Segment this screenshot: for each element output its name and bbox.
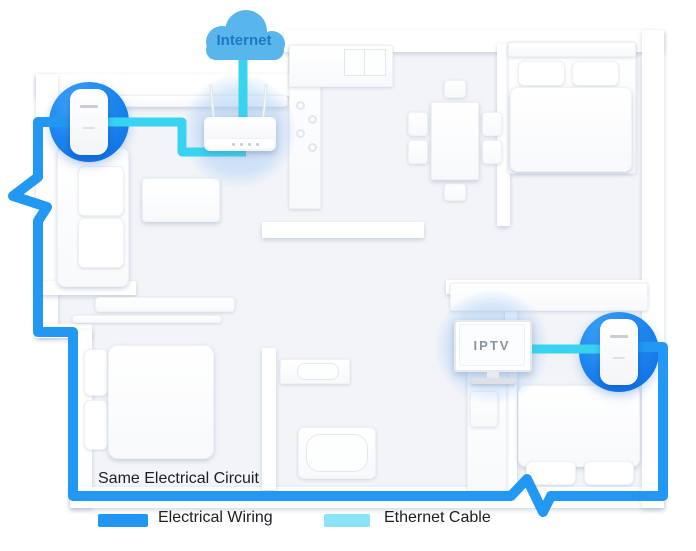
- router-led: [256, 143, 259, 146]
- electrical-wiring-path: [13, 122, 663, 512]
- legend-label-electrical: Electrical Wiring: [158, 509, 273, 527]
- internet-label: Internet: [196, 32, 292, 49]
- powerline-diagram: Internet IPTV Same Electrical Circuit El…: [0, 0, 696, 551]
- powerline-adapter-left: [70, 89, 108, 155]
- tv-screen: IPTV: [459, 324, 525, 366]
- internet-cloud: Internet: [196, 6, 292, 62]
- cable-layer: [0, 0, 696, 551]
- iptv-television: IPTV: [454, 320, 532, 386]
- adapter-logo: [610, 335, 628, 338]
- same-electrical-circuit-label: Same Electrical Circuit: [98, 470, 259, 488]
- router-led: [240, 143, 243, 146]
- legend-label-ethernet: Ethernet Cable: [384, 509, 491, 527]
- powerline-adapter-right: [600, 319, 638, 385]
- iptv-label: IPTV: [474, 338, 511, 353]
- legend-swatch-ethernet: [324, 514, 370, 527]
- adapter-logo: [80, 105, 98, 108]
- router-led: [248, 143, 251, 146]
- adapter-label-line: [613, 357, 625, 359]
- legend-swatch-electrical: [98, 514, 148, 527]
- router-front-panel: [206, 138, 274, 149]
- wireless-router: [204, 117, 276, 151]
- adapter-label-line: [83, 127, 95, 129]
- tv-stand-base: [470, 378, 516, 384]
- router-led: [232, 143, 235, 146]
